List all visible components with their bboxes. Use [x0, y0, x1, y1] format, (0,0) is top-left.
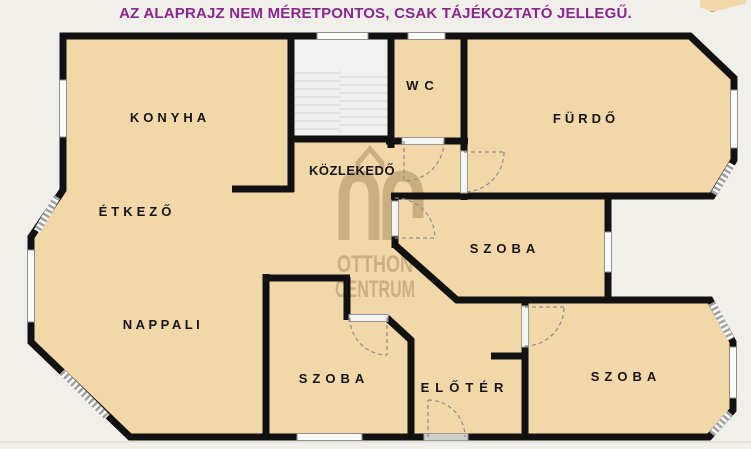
room-label-szoba-middle: SZOBA	[470, 241, 541, 256]
kitchen-left-window	[60, 80, 67, 137]
bathroom-right-window	[731, 90, 738, 148]
wc-door-sill	[402, 138, 444, 145]
room-label-nappali: NAPPALI	[123, 317, 204, 332]
room-label-eloter: ELŐTÉR	[421, 380, 510, 395]
floor-plan: OTTHON CENTRUM	[0, 28, 751, 449]
entrance-door-sill	[424, 434, 468, 441]
room-label-wc: WC	[406, 78, 440, 93]
room-label-etkezo: ÉTKEZŐ	[99, 204, 176, 219]
room-label-kozlekedo: KÖZLEKEDŐ	[309, 163, 395, 178]
room-label-szoba-bottom: SZOBA	[299, 371, 370, 386]
room-label-furdo: FÜRDŐ	[553, 111, 619, 126]
bathroom-door-sill	[461, 151, 468, 193]
staircase	[295, 39, 389, 136]
room-label-szoba-right: SZOBA	[591, 369, 662, 384]
right-room-door-sill	[522, 306, 529, 347]
livingroom-left-window	[28, 250, 35, 322]
bottom-room-door-sill	[349, 315, 388, 322]
disclaimer-banner: AZ ALAPRAJZ NEM MÉRETPONTOS, CSAK TÁJÉKO…	[0, 0, 751, 28]
middle-room-door-sill	[392, 201, 399, 236]
right-room-side-window	[730, 347, 737, 398]
bottom-room-window	[297, 434, 362, 441]
floor-plan-page: AZ ALAPRAJZ NEM MÉRETPONTOS, CSAK TÁJÉKO…	[0, 0, 751, 449]
room-label-konyha: KONYHA	[130, 110, 210, 125]
wc-top-window	[408, 33, 445, 40]
stair-top-window	[317, 33, 368, 40]
middle-room-right-window	[605, 232, 612, 272]
